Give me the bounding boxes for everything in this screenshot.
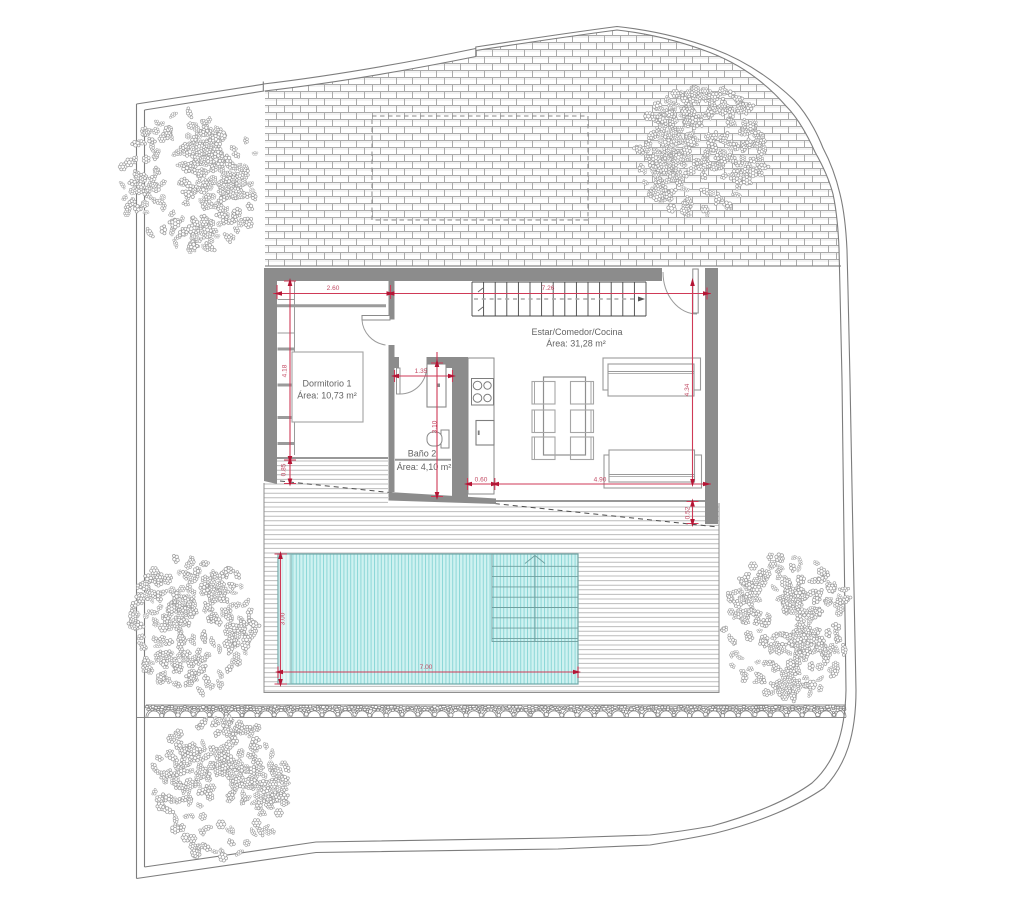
svg-text:0.60: 0.60 bbox=[475, 477, 488, 484]
svg-text:3.00: 3.00 bbox=[280, 612, 287, 625]
svg-text:4.18: 4.18 bbox=[282, 364, 289, 377]
svg-text:Estar/Comedor/Cocina: Estar/Comedor/Cocina bbox=[531, 327, 622, 337]
svg-text:1.35: 1.35 bbox=[415, 368, 428, 375]
svg-text:Área: 31,28 m²: Área: 31,28 m² bbox=[546, 339, 606, 349]
svg-text:7.26: 7.26 bbox=[542, 285, 555, 292]
svg-text:3.10: 3.10 bbox=[432, 420, 439, 433]
svg-text:0.85: 0.85 bbox=[281, 463, 288, 476]
svg-text:7.00: 7.00 bbox=[420, 664, 433, 671]
svg-text:2.60: 2.60 bbox=[327, 285, 340, 292]
svg-text:0.52: 0.52 bbox=[685, 506, 692, 519]
svg-text:Dormitorio 1: Dormitorio 1 bbox=[302, 379, 351, 389]
svg-text:4.90: 4.90 bbox=[594, 477, 607, 484]
svg-text:4.34: 4.34 bbox=[684, 383, 691, 396]
svg-text:Baño 2: Baño 2 bbox=[408, 449, 437, 459]
svg-text:Área: 10,73 m²: Área: 10,73 m² bbox=[297, 391, 357, 401]
svg-text:Área: 4,10 m²: Área: 4,10 m² bbox=[397, 462, 452, 472]
